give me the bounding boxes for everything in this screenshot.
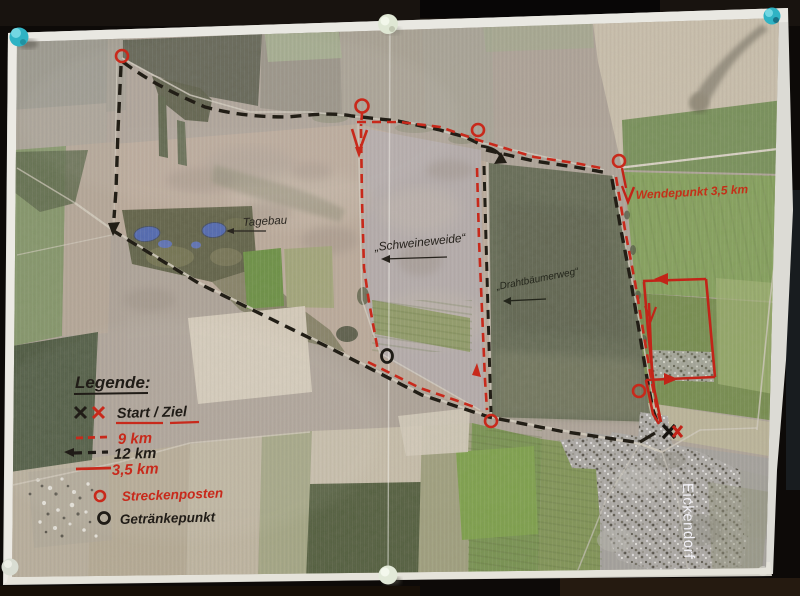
- svg-text:Legende:: Legende:: [75, 373, 151, 392]
- svg-text:Tagebau: Tagebau: [243, 215, 289, 229]
- svg-text:Getränkepunkt: Getränkepunkt: [120, 509, 216, 527]
- svg-text:Eickendorf: Eickendorf: [679, 483, 697, 559]
- svg-text:3,5 km: 3,5 km: [112, 460, 159, 479]
- svg-text:Start / Ziel: Start / Ziel: [117, 404, 188, 422]
